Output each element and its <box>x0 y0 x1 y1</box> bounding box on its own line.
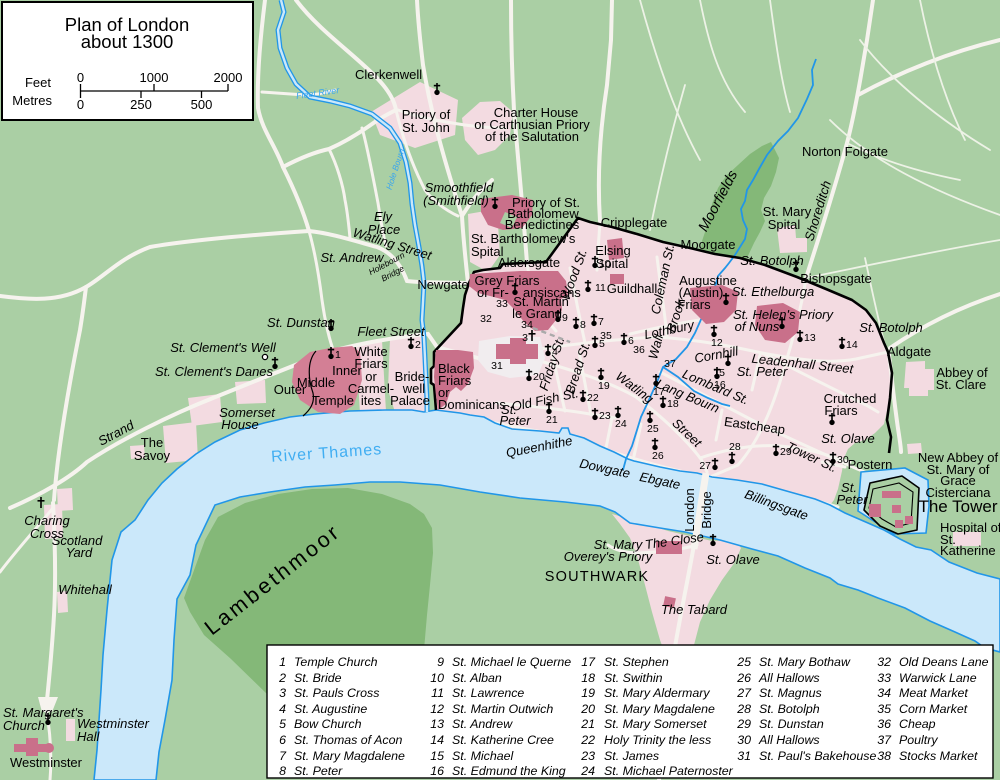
svg-text:3: 3 <box>279 686 286 700</box>
svg-text:2: 2 <box>415 339 421 351</box>
svg-text:Guildhall: Guildhall <box>607 281 658 296</box>
svg-text:St. Botolph: St. Botolph <box>740 253 804 268</box>
svg-text:St. Michael le Querne: St. Michael le Querne <box>452 655 571 669</box>
svg-text:St. Peter: St. Peter <box>737 364 788 379</box>
svg-text:SOUTHWARK: SOUTHWARK <box>545 569 650 585</box>
svg-text:Bridge: Bridge <box>699 491 714 529</box>
svg-text:24: 24 <box>580 764 595 778</box>
svg-text:19: 19 <box>581 686 595 700</box>
svg-text:15: 15 <box>430 749 444 763</box>
svg-text:Overey's Priory: Overey's Priory <box>564 549 654 564</box>
svg-text:House: House <box>221 417 259 432</box>
svg-text:Bow Church: Bow Church <box>294 717 362 731</box>
svg-text:31: 31 <box>737 749 751 763</box>
svg-text:Stocks Market: Stocks Market <box>899 749 978 763</box>
svg-text:or Fr-: or Fr- <box>477 285 509 300</box>
svg-text:21: 21 <box>546 414 558 426</box>
svg-text:St. Augustine: St. Augustine <box>294 702 367 716</box>
svg-text:4: 4 <box>279 702 286 716</box>
svg-text:St. Edmund the King: St. Edmund the King <box>452 764 566 778</box>
svg-text:St. Stephen: St. Stephen <box>604 655 669 669</box>
svg-text:32: 32 <box>480 313 492 325</box>
svg-text:8: 8 <box>279 764 286 778</box>
svg-text:St. Magnus: St. Magnus <box>759 686 822 700</box>
svg-text:St. Michael: St. Michael <box>452 749 515 763</box>
svg-text:37: 37 <box>664 358 676 370</box>
svg-text:17: 17 <box>581 655 596 669</box>
svg-text:23: 23 <box>599 410 611 422</box>
svg-text:9: 9 <box>437 655 444 669</box>
svg-text:32: 32 <box>877 655 891 669</box>
svg-text:0: 0 <box>77 97 84 112</box>
svg-text:Cripplegate: Cripplegate <box>601 215 668 230</box>
svg-text:Peter: Peter <box>499 413 531 428</box>
svg-text:Spital: Spital <box>768 217 801 232</box>
svg-text:Spital: Spital <box>596 256 629 271</box>
svg-text:20: 20 <box>580 702 595 716</box>
svg-text:26: 26 <box>736 671 751 685</box>
svg-text:St. Martin Outwich: St. Martin Outwich <box>452 702 553 716</box>
svg-text:3: 3 <box>522 332 528 344</box>
svg-text:16: 16 <box>430 764 444 778</box>
svg-text:Newgate: Newgate <box>417 277 468 292</box>
svg-text:St. Dunstan: St. Dunstan <box>759 717 824 731</box>
svg-text:Meat Market: Meat Market <box>899 686 968 700</box>
svg-text:St. Mary Aldermary: St. Mary Aldermary <box>604 686 710 700</box>
svg-text:St. Olave: St. Olave <box>706 552 759 567</box>
svg-text:28: 28 <box>729 441 741 453</box>
svg-text:25: 25 <box>736 655 751 669</box>
svg-text:Church: Church <box>3 718 45 733</box>
svg-text:St. Botolph: St. Botolph <box>859 320 923 335</box>
svg-text:Norton Folgate: Norton Folgate <box>802 144 888 159</box>
svg-text:18: 18 <box>581 671 595 685</box>
svg-text:Palace: Palace <box>390 393 430 408</box>
svg-text:13: 13 <box>430 717 444 731</box>
svg-text:of the Salutation: of the Salutation <box>485 129 579 144</box>
svg-text:12: 12 <box>430 702 444 716</box>
svg-text:The Tabard: The Tabard <box>661 602 728 617</box>
svg-text:Postern: Postern <box>848 457 893 472</box>
svg-text:2000: 2000 <box>214 70 243 85</box>
svg-text:St. Clare: St. Clare <box>936 377 987 392</box>
svg-text:St. John: St. John <box>402 120 450 135</box>
svg-text:St. Clement's Danes: St. Clement's Danes <box>155 364 274 379</box>
svg-text:Clerkenwell: Clerkenwell <box>355 67 422 82</box>
svg-text:25: 25 <box>647 423 659 435</box>
svg-text:Katherine: Katherine <box>940 543 996 558</box>
svg-text:2: 2 <box>278 671 286 685</box>
svg-text:Hall: Hall <box>77 729 101 744</box>
svg-text:36: 36 <box>877 717 891 731</box>
svg-text:St. Michael Paternoster: St. Michael Paternoster <box>604 764 734 778</box>
svg-text:Friars: Friars <box>824 403 858 418</box>
svg-text:St. Mary Magdalene: St. Mary Magdalene <box>604 702 715 716</box>
svg-text:24: 24 <box>615 418 627 430</box>
svg-text:35: 35 <box>600 330 612 342</box>
svg-text:Old Deans Lane: Old Deans Lane <box>899 655 989 669</box>
svg-text:Feet: Feet <box>25 75 51 90</box>
svg-text:(Smithfield): (Smithfield) <box>423 193 489 208</box>
svg-text:1: 1 <box>335 349 341 361</box>
svg-text:23: 23 <box>580 749 595 763</box>
svg-text:35: 35 <box>877 702 891 716</box>
svg-text:Savoy: Savoy <box>134 448 171 463</box>
svg-text:Fleet Street: Fleet Street <box>357 324 426 339</box>
svg-text:36: 36 <box>633 344 645 356</box>
svg-text:30: 30 <box>737 733 751 747</box>
svg-text:Peter: Peter <box>836 492 868 507</box>
svg-text:Benedictines: Benedictines <box>505 217 580 232</box>
svg-text:250: 250 <box>130 97 152 112</box>
svg-text:Whitehall: Whitehall <box>58 582 113 597</box>
svg-text:37: 37 <box>877 733 892 747</box>
svg-text:21: 21 <box>580 717 595 731</box>
svg-text:St. Peter: St. Peter <box>294 764 343 778</box>
svg-text:St. Dunstan: St. Dunstan <box>267 315 335 330</box>
svg-text:St. Olave: St. Olave <box>821 431 874 446</box>
svg-text:22: 22 <box>587 392 599 404</box>
svg-text:St. James: St. James <box>604 749 659 763</box>
svg-text:ites: ites <box>361 393 382 408</box>
svg-text:1: 1 <box>279 655 286 669</box>
svg-text:Metres: Metres <box>12 93 52 108</box>
svg-text:Holy Trinity the less: Holy Trinity the less <box>604 733 711 747</box>
svg-text:13: 13 <box>804 332 816 344</box>
svg-text:27: 27 <box>736 686 752 700</box>
svg-text:St. Swithin: St. Swithin <box>604 671 663 685</box>
svg-text:19: 19 <box>598 380 610 392</box>
svg-text:Moorgate: Moorgate <box>681 237 736 252</box>
svg-text:about 1300: about 1300 <box>81 31 174 52</box>
svg-text:7: 7 <box>598 316 604 328</box>
svg-text:26: 26 <box>652 450 664 462</box>
svg-text:38: 38 <box>877 749 891 763</box>
svg-text:Warwick Lane: Warwick Lane <box>899 671 977 685</box>
svg-text:7: 7 <box>279 749 287 763</box>
svg-text:31: 31 <box>491 360 503 372</box>
svg-text:St. Ethelburga: St. Ethelburga <box>732 284 814 299</box>
svg-text:11: 11 <box>595 282 606 294</box>
svg-text:St. Alban: St. Alban <box>452 671 502 685</box>
svg-text:St. Katherine Cree: St. Katherine Cree <box>452 733 554 747</box>
svg-text:St. Mary Somerset: St. Mary Somerset <box>604 717 707 731</box>
svg-text:All Hallows: All Hallows <box>758 671 820 685</box>
svg-text:St. Mary Magdalene: St. Mary Magdalene <box>294 749 405 763</box>
svg-text:St. Andrew: St. Andrew <box>452 717 513 731</box>
svg-text:6: 6 <box>279 733 286 747</box>
svg-text:1000: 1000 <box>140 70 169 85</box>
svg-text:Middle: Middle <box>297 375 335 390</box>
svg-text:10: 10 <box>430 671 444 685</box>
svg-text:33: 33 <box>877 671 891 685</box>
svg-text:London: London <box>682 488 697 531</box>
svg-text:Cisterciana: Cisterciana <box>925 485 991 500</box>
svg-text:St. Thomas of Acon: St. Thomas of Acon <box>294 733 402 747</box>
svg-text:St. Paul's Bakehouse: St. Paul's Bakehouse <box>759 749 877 763</box>
svg-text:8: 8 <box>580 319 586 331</box>
svg-text:Cheap: Cheap <box>899 717 936 731</box>
svg-text:18: 18 <box>667 398 679 410</box>
svg-text:Dominicans: Dominicans <box>438 397 506 412</box>
svg-text:34: 34 <box>877 686 891 700</box>
svg-text:0: 0 <box>77 70 84 85</box>
svg-text:of Nuns: of Nuns <box>735 319 780 334</box>
svg-text:le Grand: le Grand <box>512 306 562 321</box>
svg-text:Yard: Yard <box>66 545 93 560</box>
svg-text:Temple Church: Temple Church <box>294 655 378 669</box>
svg-text:St. Mary Bothaw: St. Mary Bothaw <box>759 655 851 669</box>
svg-text:14: 14 <box>846 339 858 351</box>
svg-text:27: 27 <box>699 460 711 472</box>
svg-text:St. Bride: St. Bride <box>294 671 342 685</box>
svg-text:Westminster: Westminster <box>10 755 83 770</box>
svg-text:22: 22 <box>580 733 595 747</box>
svg-text:11: 11 <box>431 686 444 700</box>
svg-text:14: 14 <box>430 733 444 747</box>
svg-text:29: 29 <box>736 717 751 731</box>
svg-text:Poultry: Poultry <box>899 733 938 747</box>
svg-text:St. Botolph: St. Botolph <box>759 702 820 716</box>
svg-text:5: 5 <box>279 717 286 731</box>
svg-text:Aldersgate: Aldersgate <box>498 255 560 270</box>
svg-text:St. Lawrence: St. Lawrence <box>452 686 524 700</box>
svg-text:St. Clement's Well: St. Clement's Well <box>170 340 277 355</box>
svg-text:St. Pauls Cross: St. Pauls Cross <box>294 686 379 700</box>
svg-text:All Hallows: All Hallows <box>758 733 820 747</box>
svg-text:500: 500 <box>191 97 213 112</box>
svg-text:28: 28 <box>736 702 751 716</box>
svg-text:9: 9 <box>562 312 568 324</box>
svg-text:Aldgate: Aldgate <box>887 344 931 359</box>
svg-text:Corn Market: Corn Market <box>899 702 968 716</box>
